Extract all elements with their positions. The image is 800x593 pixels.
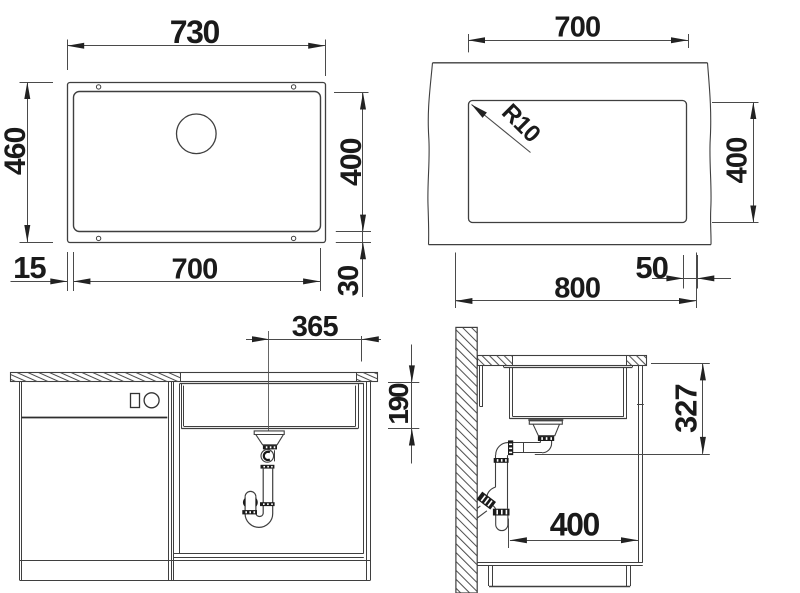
svg-text:400: 400 [335, 138, 368, 186]
svg-text:365: 365 [292, 311, 339, 343]
svg-text:800: 800 [554, 273, 600, 305]
svg-text:400: 400 [722, 137, 754, 183]
svg-text:30: 30 [333, 266, 365, 297]
svg-text:327: 327 [668, 384, 703, 433]
svg-text:15: 15 [13, 250, 46, 285]
svg-text:190: 190 [383, 383, 414, 425]
svg-text:460: 460 [0, 127, 32, 175]
svg-text:730: 730 [170, 14, 220, 50]
svg-text:400: 400 [550, 507, 600, 543]
svg-text:700: 700 [172, 253, 218, 285]
svg-text:700: 700 [554, 12, 600, 44]
svg-text:50: 50 [635, 250, 667, 285]
